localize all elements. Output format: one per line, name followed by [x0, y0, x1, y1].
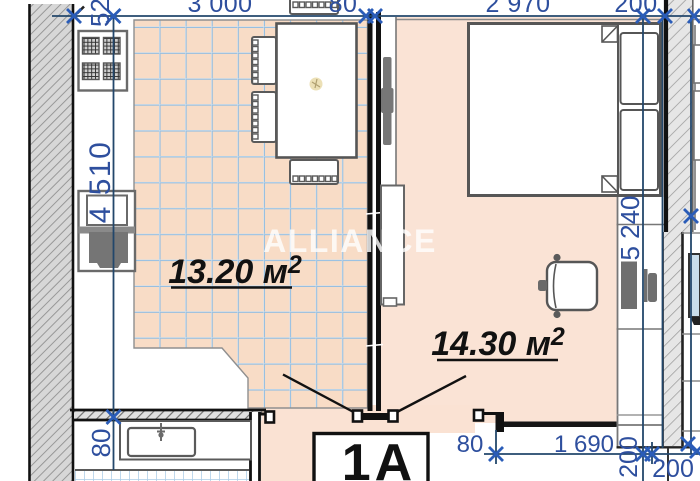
svg-text:520: 520	[85, 0, 115, 27]
svg-text:3 000: 3 000	[187, 0, 252, 18]
svg-text:200: 200	[615, 436, 643, 478]
svg-text:200: 200	[614, 0, 657, 18]
svg-text:80: 80	[329, 0, 358, 18]
svg-text:80: 80	[457, 431, 484, 458]
svg-text:80: 80	[86, 429, 116, 458]
svg-text:4 510: 4 510	[84, 141, 117, 224]
svg-text:14.30 м2: 14.30 м2	[431, 323, 565, 363]
svg-text:ALLIANCE: ALLIANCE	[263, 223, 437, 259]
svg-text:5 240: 5 240	[615, 195, 645, 260]
svg-text:2 970: 2 970	[485, 0, 550, 18]
svg-text:1 690: 1 690	[554, 431, 614, 458]
svg-text:200: 200	[652, 455, 694, 481]
svg-text:1A: 1A	[342, 434, 416, 481]
